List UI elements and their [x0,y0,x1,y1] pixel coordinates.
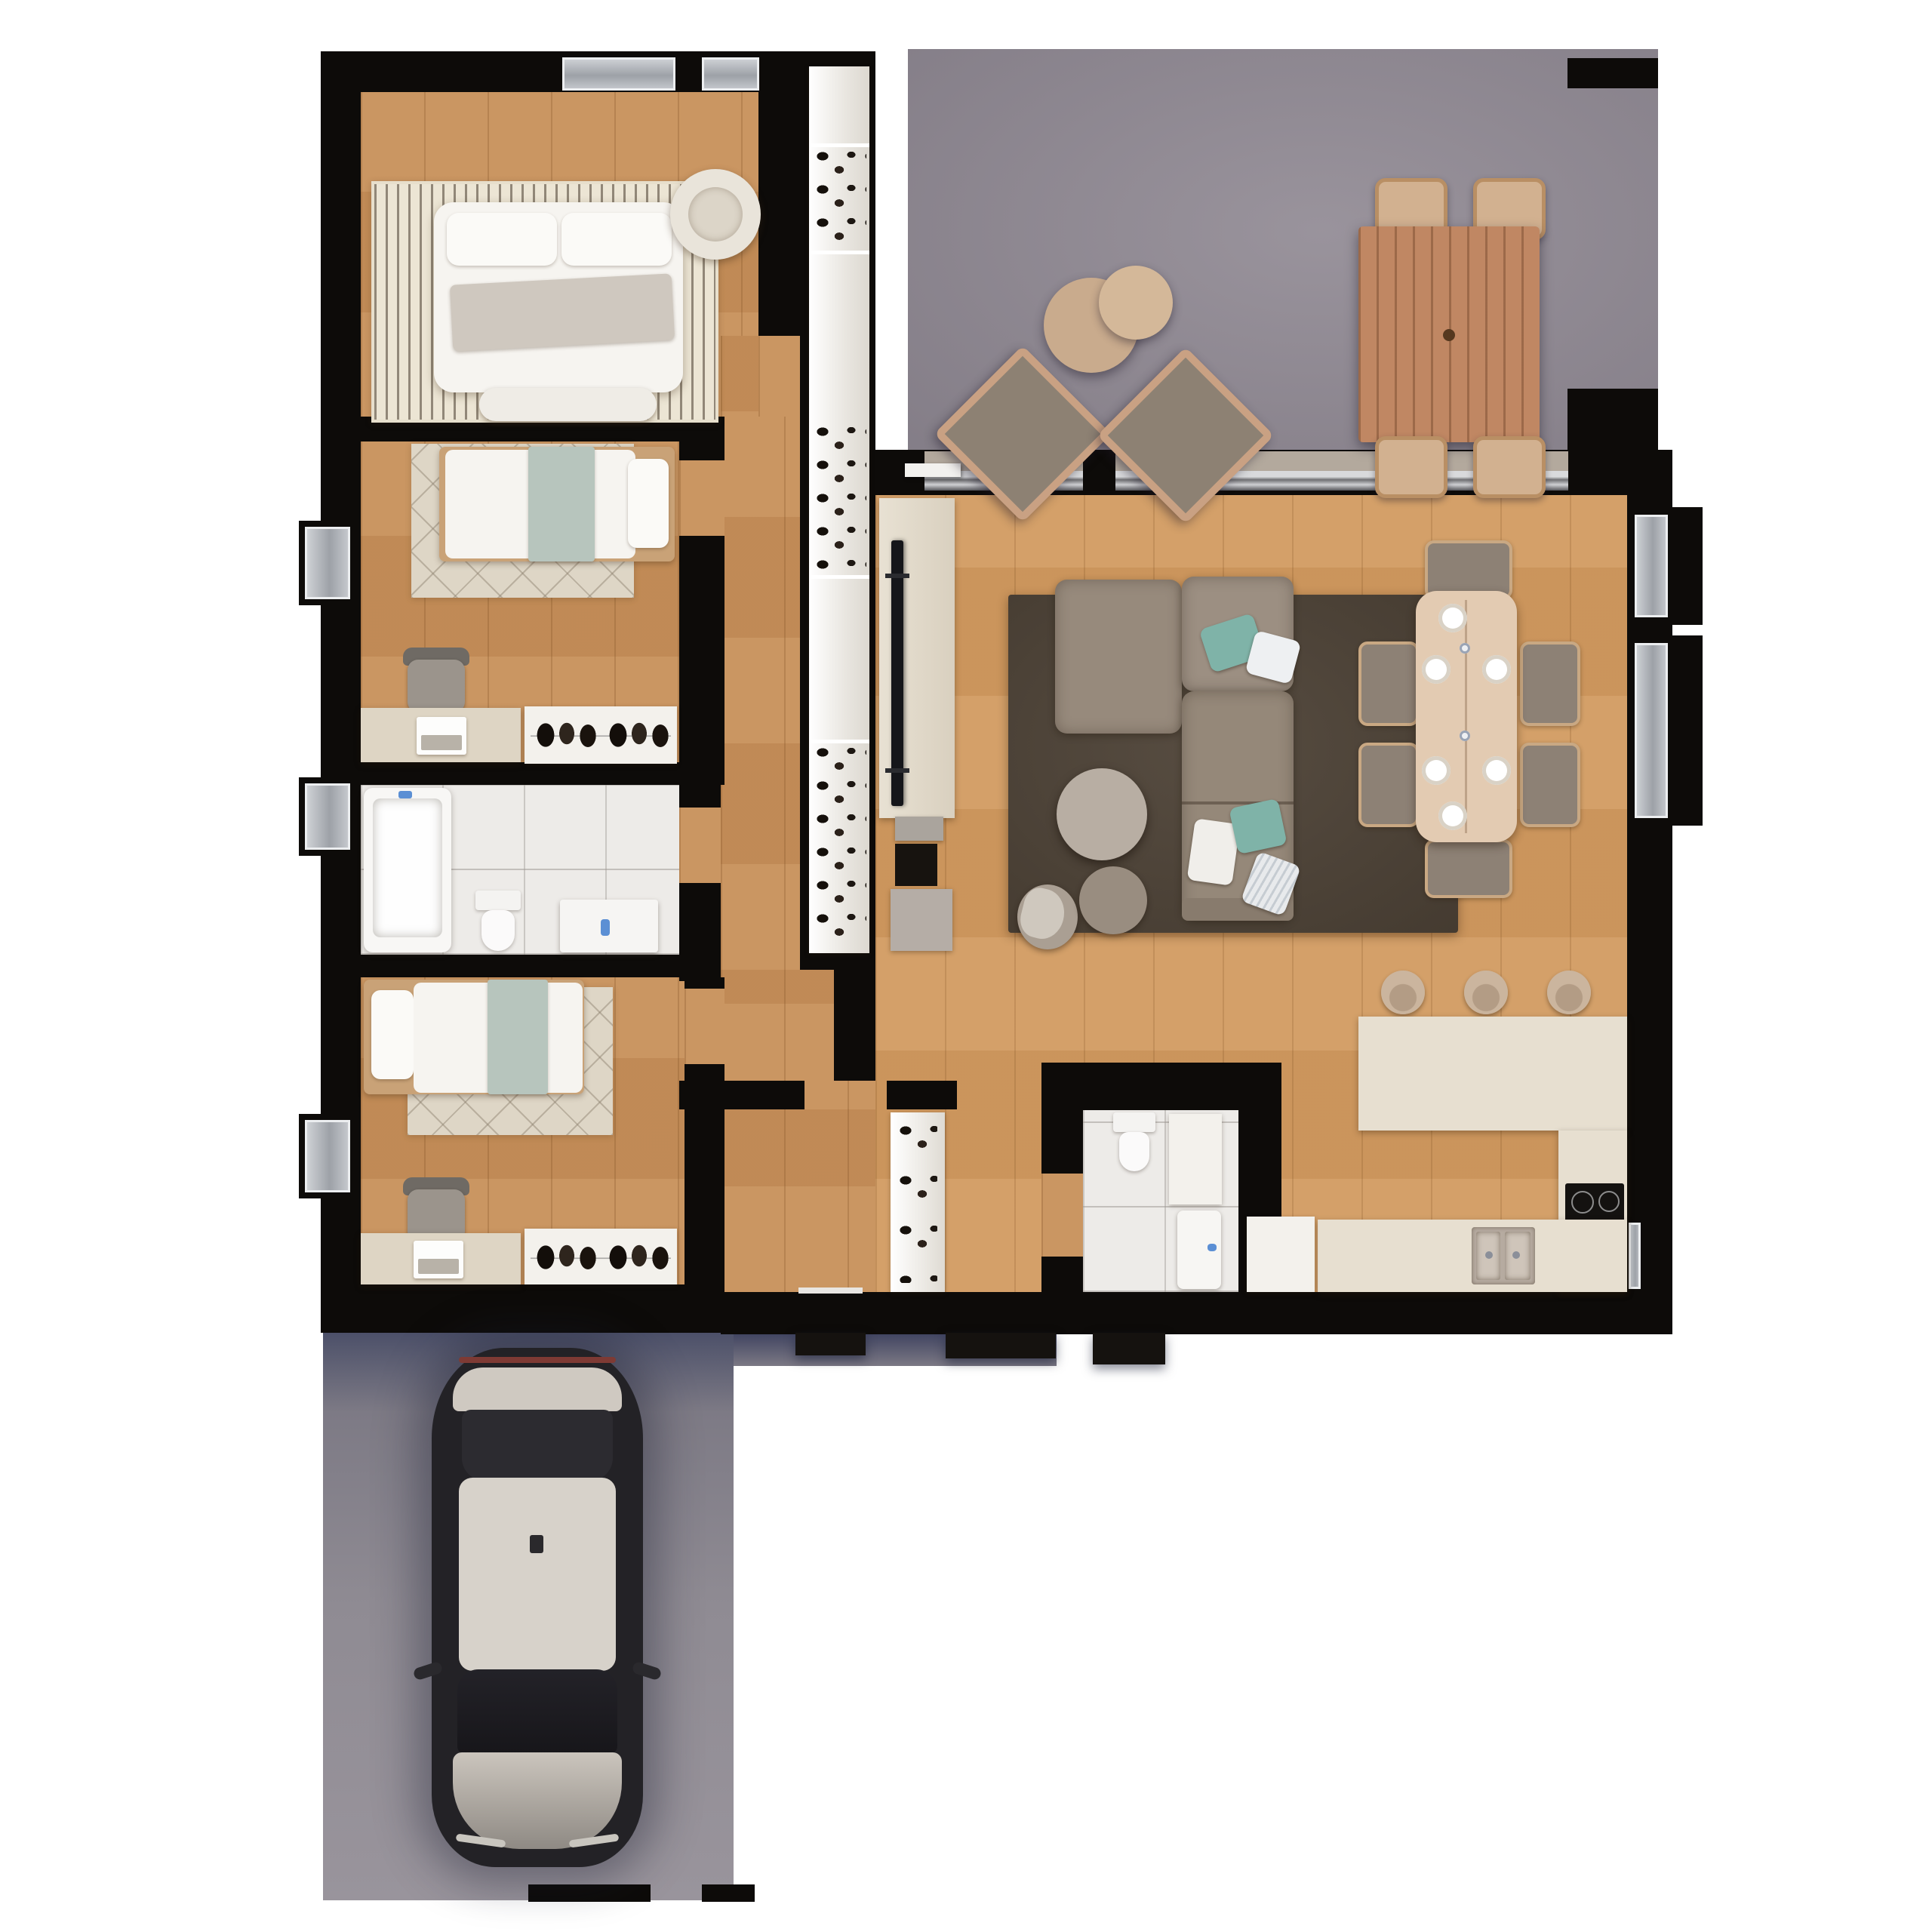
front-door-threshold [798,1287,863,1294]
entry-step-porch [946,1333,1056,1358]
bedroom2-pillow [628,459,669,548]
car-windshield [457,1669,617,1754]
wc-toilet-bowl [1119,1132,1149,1171]
wall-bedroom2-right-a [679,441,724,460]
bedroom2-door-opening [679,460,724,536]
living-corner-sill [905,463,961,477]
wall-bedroom3-right-a [685,977,724,989]
bar-stool-2 [1464,971,1508,1014]
dining-table-seam [1465,600,1467,833]
plate-left-2 [1422,756,1451,785]
kitchen-white-cabinet [1247,1217,1315,1292]
cooktop-burner-2 [1598,1191,1620,1212]
dining-chair-left-2 [1358,743,1419,827]
sideboard-black-module [895,844,937,886]
wc-door-opening [1041,1174,1083,1257]
wall-bedroom2-bath-divider [321,762,679,785]
toilet-bowl [481,910,515,951]
master-door-opening [758,336,800,417]
bedroom3-laptop-keyboard [418,1259,459,1274]
shoe-closet-shelf-2 [809,251,869,254]
table-cup-1 [1460,643,1470,654]
wc-wall-cabinet [1169,1114,1222,1204]
floor-plan-canvas [0,0,1932,1932]
bedroom3-sage-blanket [488,980,548,1094]
driveway-bottom-stub-b [702,1884,755,1902]
shoe-closet-shoes-middle [812,423,866,574]
sofa-chaise-section [1055,580,1182,734]
terrace-wicker-chair-bottom-left [1375,436,1447,498]
car-roof [459,1478,616,1671]
wall-bath-bedroom3-divider [321,955,679,977]
wall-bathroom-right-a [679,785,721,808]
master-round-chair-cushion [688,187,743,241]
window-right-2-glass [1635,643,1668,818]
bedroom3-wardrobe-clothes [531,1235,671,1278]
window-left-2-glass [305,783,350,850]
front-door-porch [795,1333,866,1355]
car-rear-deck [453,1367,622,1411]
terrace-table-umbrella-hole [1443,329,1455,341]
plate-right-2 [1482,756,1511,785]
shoe-closet-shelf-4 [809,740,869,743]
dining-chair-right-2 [1520,743,1580,827]
bedroom2-laptop-keyboard [421,735,462,750]
wall-terrace-bottom-right-block [1567,389,1658,453]
sofa-pillow-white-bottom [1187,818,1241,886]
shoe-closet-shelf-1 [809,143,869,147]
tv-stand-bottom [885,768,909,773]
master-bed-throw-blanket [450,273,675,351]
wall-master-right [758,92,800,336]
pouf-plain [1079,866,1147,934]
bathroom-door-opening [679,808,721,883]
sideboard-low-cabinet [891,889,952,951]
corridor-floor-upper [721,336,804,970]
entry-shoe-closet-shoes [895,1121,940,1283]
bedroom3-pillow [371,990,414,1079]
shoe-closet-shelf-3 [809,575,869,579]
sideboard-gray-module [895,817,943,841]
car-taillight-bar [459,1357,616,1363]
kitchen-faucet [1485,1251,1493,1259]
tv-stand-top [885,574,909,578]
bar-stool-1 [1381,971,1425,1014]
wall-bottom-left [321,1284,724,1333]
window-left-1-glass [305,527,350,599]
wall-bedroom2-right-b [679,536,724,785]
plate-left-1 [1422,655,1451,684]
dining-chair-bottom [1425,839,1512,898]
car-hood [453,1752,622,1849]
plate-bottom [1438,801,1467,830]
wall-corridor-bottom [679,1081,804,1109]
wall-terrace-top-right-block [1567,58,1658,88]
bedroom2-sage-blanket [528,447,595,561]
master-bed-pillow-left [447,213,557,266]
wc-toilet-tank [1113,1112,1155,1132]
coffee-table [1057,768,1147,860]
wc-side-porch [1093,1333,1165,1364]
window-right-corner-glass [1629,1223,1641,1289]
toilet-tank [475,891,521,910]
wall-bottom-hall-kitchen [721,1292,1672,1334]
kitchen-island [1358,1017,1627,1131]
terrace-wicker-chair-bottom-right [1473,436,1546,498]
table-cup-2 [1460,731,1470,741]
master-bed-pillow-right [561,213,672,266]
master-foot-bench [479,388,657,421]
wall-wc-top [1041,1063,1281,1110]
bar-stool-3 [1547,971,1591,1014]
bedroom2-chair-seat [408,660,465,712]
wall-bathroom-right-b [679,883,721,981]
plate-right-1 [1482,655,1511,684]
bedroom3-door-opening [685,989,724,1064]
wc-shower-handle [1207,1244,1217,1251]
window-right-1-glass [1635,515,1668,617]
wall-wc-left-b [1041,1257,1083,1292]
window-top-1-glass [562,57,675,91]
dining-chair-right-1 [1520,641,1580,726]
bathtub-faucet [398,791,412,798]
terrace-side-table-small [1099,266,1173,340]
dining-chair-left-1 [1358,641,1419,726]
shoe-closet-shoes-top [812,147,866,249]
plate-top [1438,604,1467,632]
bathroom-vanity-faucet [601,919,610,936]
car-rear-window [462,1410,613,1481]
window-left-3-glass [305,1120,350,1192]
wall-wc-left-a [1041,1110,1083,1174]
cooktop-burner-1 [1571,1191,1594,1214]
bedroom2-wardrobe-clothes [531,712,671,758]
shoe-closet-shoes-bottom [812,743,866,937]
tv-flatscreen [891,540,903,806]
bathtub-basin [373,798,442,937]
wall-entry-closet-stub [887,1081,957,1109]
window-top-2-glass [702,57,759,91]
car-roof-badge [530,1535,543,1553]
driveway-bottom-stub-a [528,1884,651,1902]
kitchen-faucet-2 [1512,1251,1520,1259]
